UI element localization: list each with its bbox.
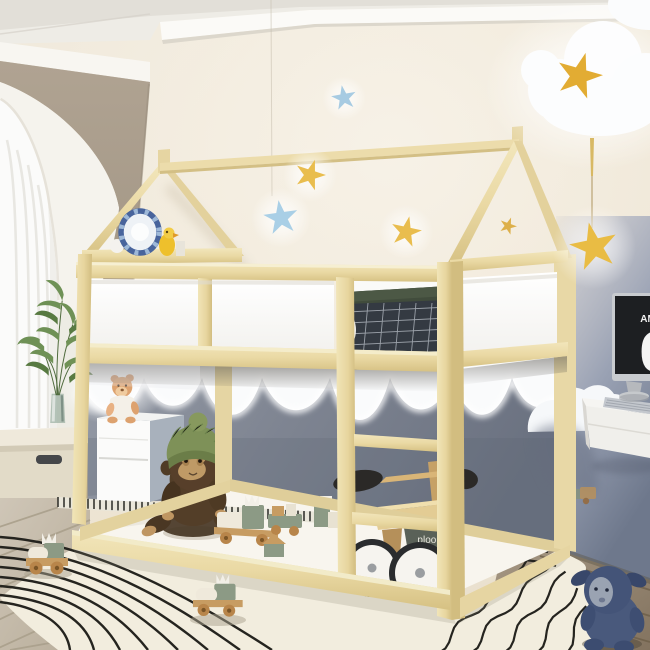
svg-text:0: 0: [642, 324, 650, 380]
